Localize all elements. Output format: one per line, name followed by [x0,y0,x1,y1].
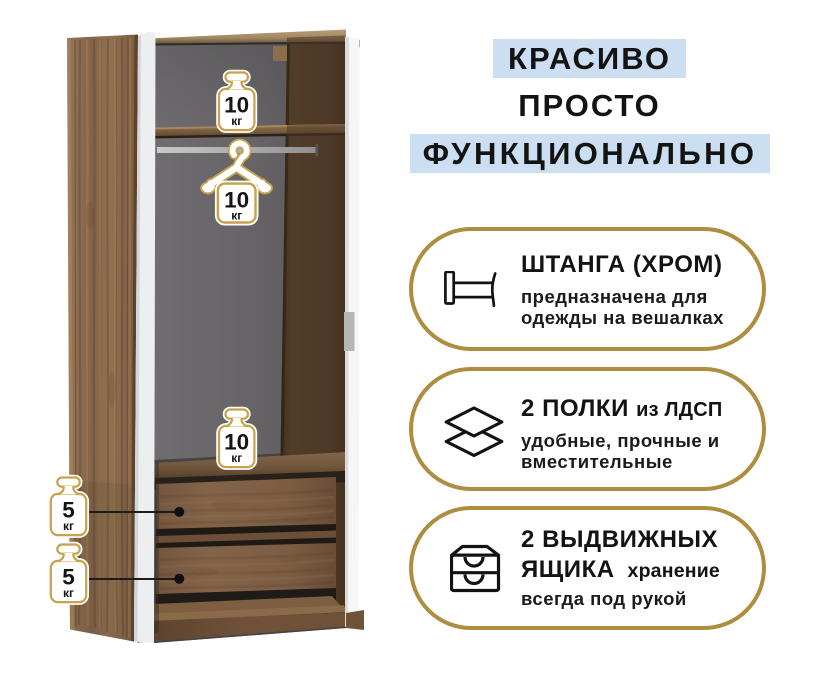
svg-text:кг: кг [63,519,74,533]
svg-text:кг: кг [63,586,74,600]
svg-text:кг: кг [231,114,242,128]
svg-text:кг: кг [231,451,242,465]
svg-text:кг: кг [231,209,242,223]
